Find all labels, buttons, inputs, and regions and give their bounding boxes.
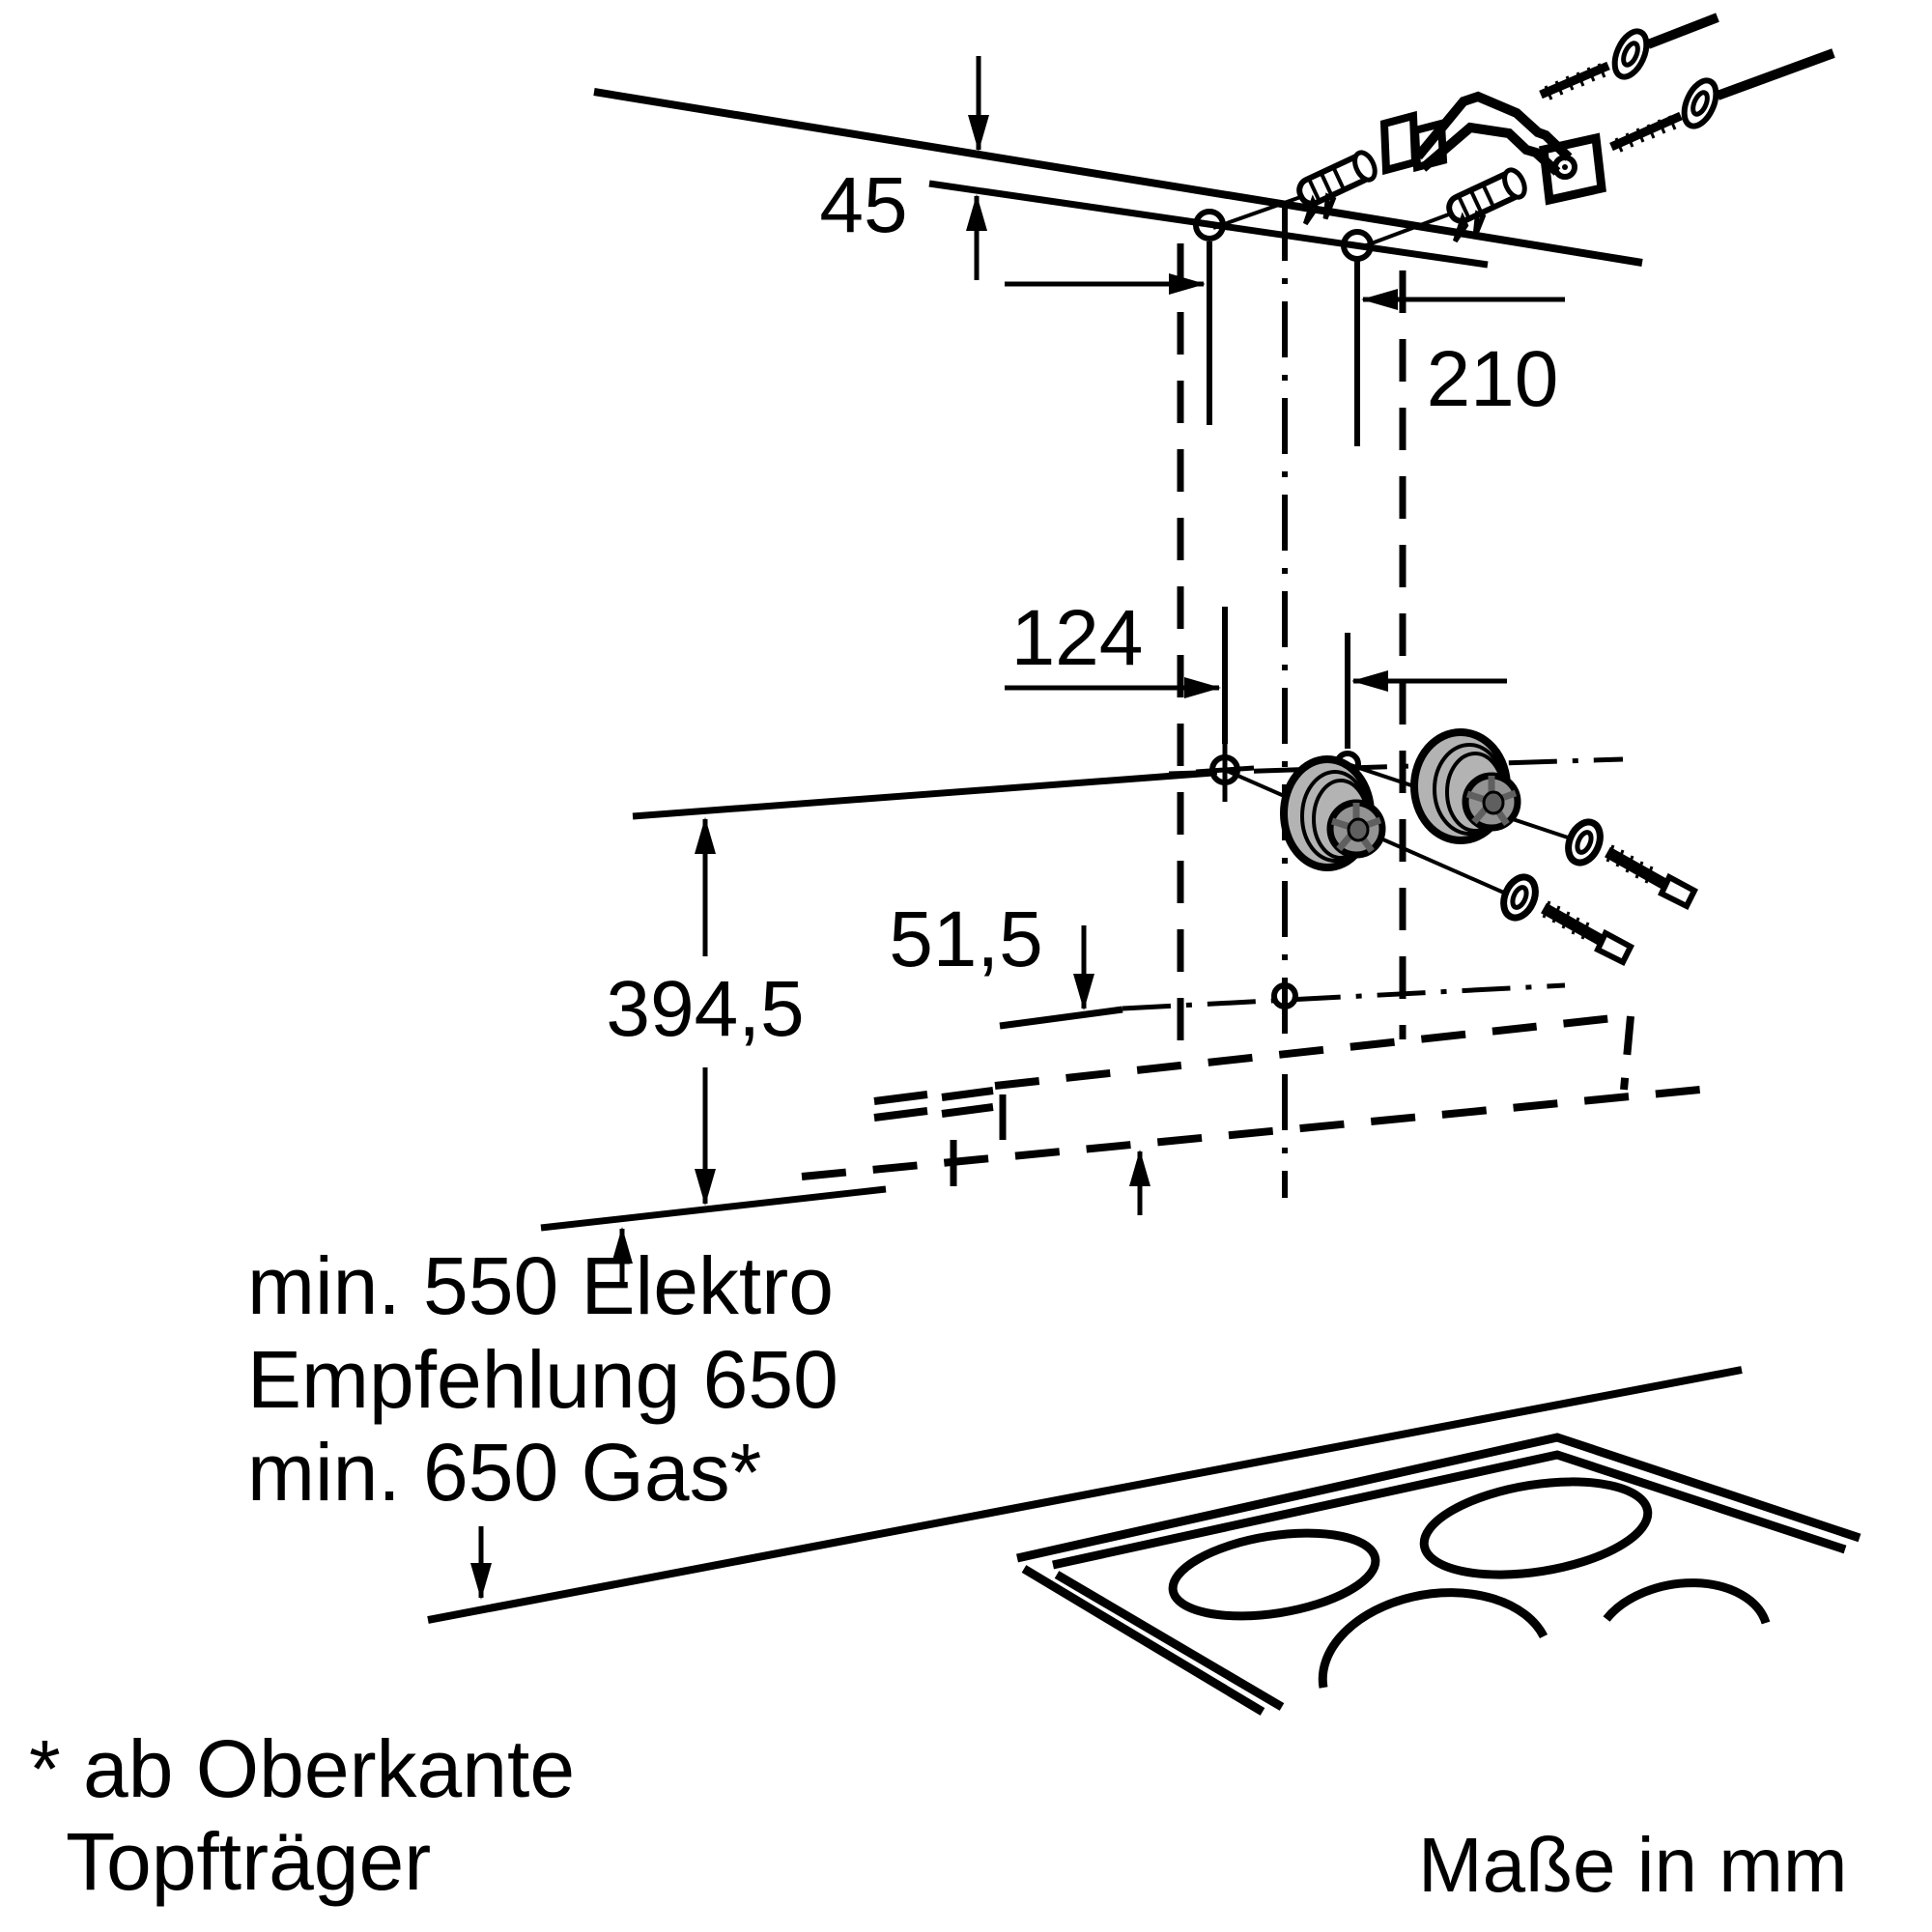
mounting-bracket bbox=[1213, 17, 1833, 247]
cooktop bbox=[1017, 1437, 1860, 1712]
clearance-text-3: min. 650 Gas* bbox=[247, 1427, 761, 1518]
dim-210-label: 210 bbox=[1427, 335, 1559, 423]
footnote-line-2: Topfträger bbox=[66, 1816, 431, 1907]
bracket-clip-left bbox=[1384, 116, 1415, 170]
hood-outline-bottom bbox=[802, 1090, 1700, 1177]
screw-mid-right-icon bbox=[1607, 845, 1694, 906]
hood-outline-right-corner bbox=[1624, 1016, 1631, 1090]
ceiling-line bbox=[594, 92, 1642, 263]
diagram-canvas: 45 bbox=[0, 0, 1932, 1932]
lower-hole-axis-dashdot bbox=[1122, 985, 1565, 1009]
spacer-cone-right-icon bbox=[1414, 732, 1518, 840]
washer-top-left-icon bbox=[1608, 26, 1653, 81]
hood-outline-dashed bbox=[802, 1016, 1700, 1215]
screw-mid-left-icon bbox=[1544, 901, 1631, 962]
wall-lower-line bbox=[541, 1189, 886, 1228]
washer-mid-right-icon bbox=[1562, 817, 1605, 867]
dim-45-label: 45 bbox=[819, 161, 907, 249]
installation-diagram: 45 bbox=[0, 0, 1932, 1932]
washer-top-right-icon bbox=[1678, 75, 1722, 130]
wall-mid-line bbox=[633, 773, 1213, 816]
clearance-text-2: Empfehlung 650 bbox=[247, 1334, 838, 1425]
clearance-text-1: min. 550 Elektro bbox=[247, 1240, 834, 1331]
washer-mid-left-icon bbox=[1497, 872, 1541, 923]
cooktop-border-inner-left bbox=[1057, 1575, 1282, 1707]
hood-outline-top bbox=[995, 1016, 1631, 1086]
burner-back-right bbox=[1606, 1583, 1766, 1623]
bracket-screw-hole-center bbox=[1562, 164, 1568, 170]
cooktop-border-outer-left bbox=[1024, 1569, 1263, 1712]
dim-394-label: 394,5 bbox=[606, 965, 804, 1053]
footnote-line-1: * ab Oberkante bbox=[29, 1723, 575, 1814]
screw-top-right-icon bbox=[1611, 53, 1833, 152]
dim-51-label: 51,5 bbox=[889, 895, 1043, 983]
dim-124-label: 124 bbox=[1011, 594, 1144, 682]
units-note: Maße in mm bbox=[1418, 1822, 1848, 1908]
screw-head bbox=[1662, 877, 1694, 906]
screw-head bbox=[1598, 933, 1631, 962]
hood-equal-marks bbox=[874, 1091, 993, 1118]
spacer-cone-left-icon bbox=[1284, 759, 1382, 867]
cooktop-border-outer-top bbox=[1017, 1437, 1860, 1558]
burner-back-left bbox=[1417, 1467, 1654, 1588]
burner-front-right bbox=[1322, 1593, 1544, 1688]
hood-top-edge-line bbox=[1000, 1009, 1122, 1026]
